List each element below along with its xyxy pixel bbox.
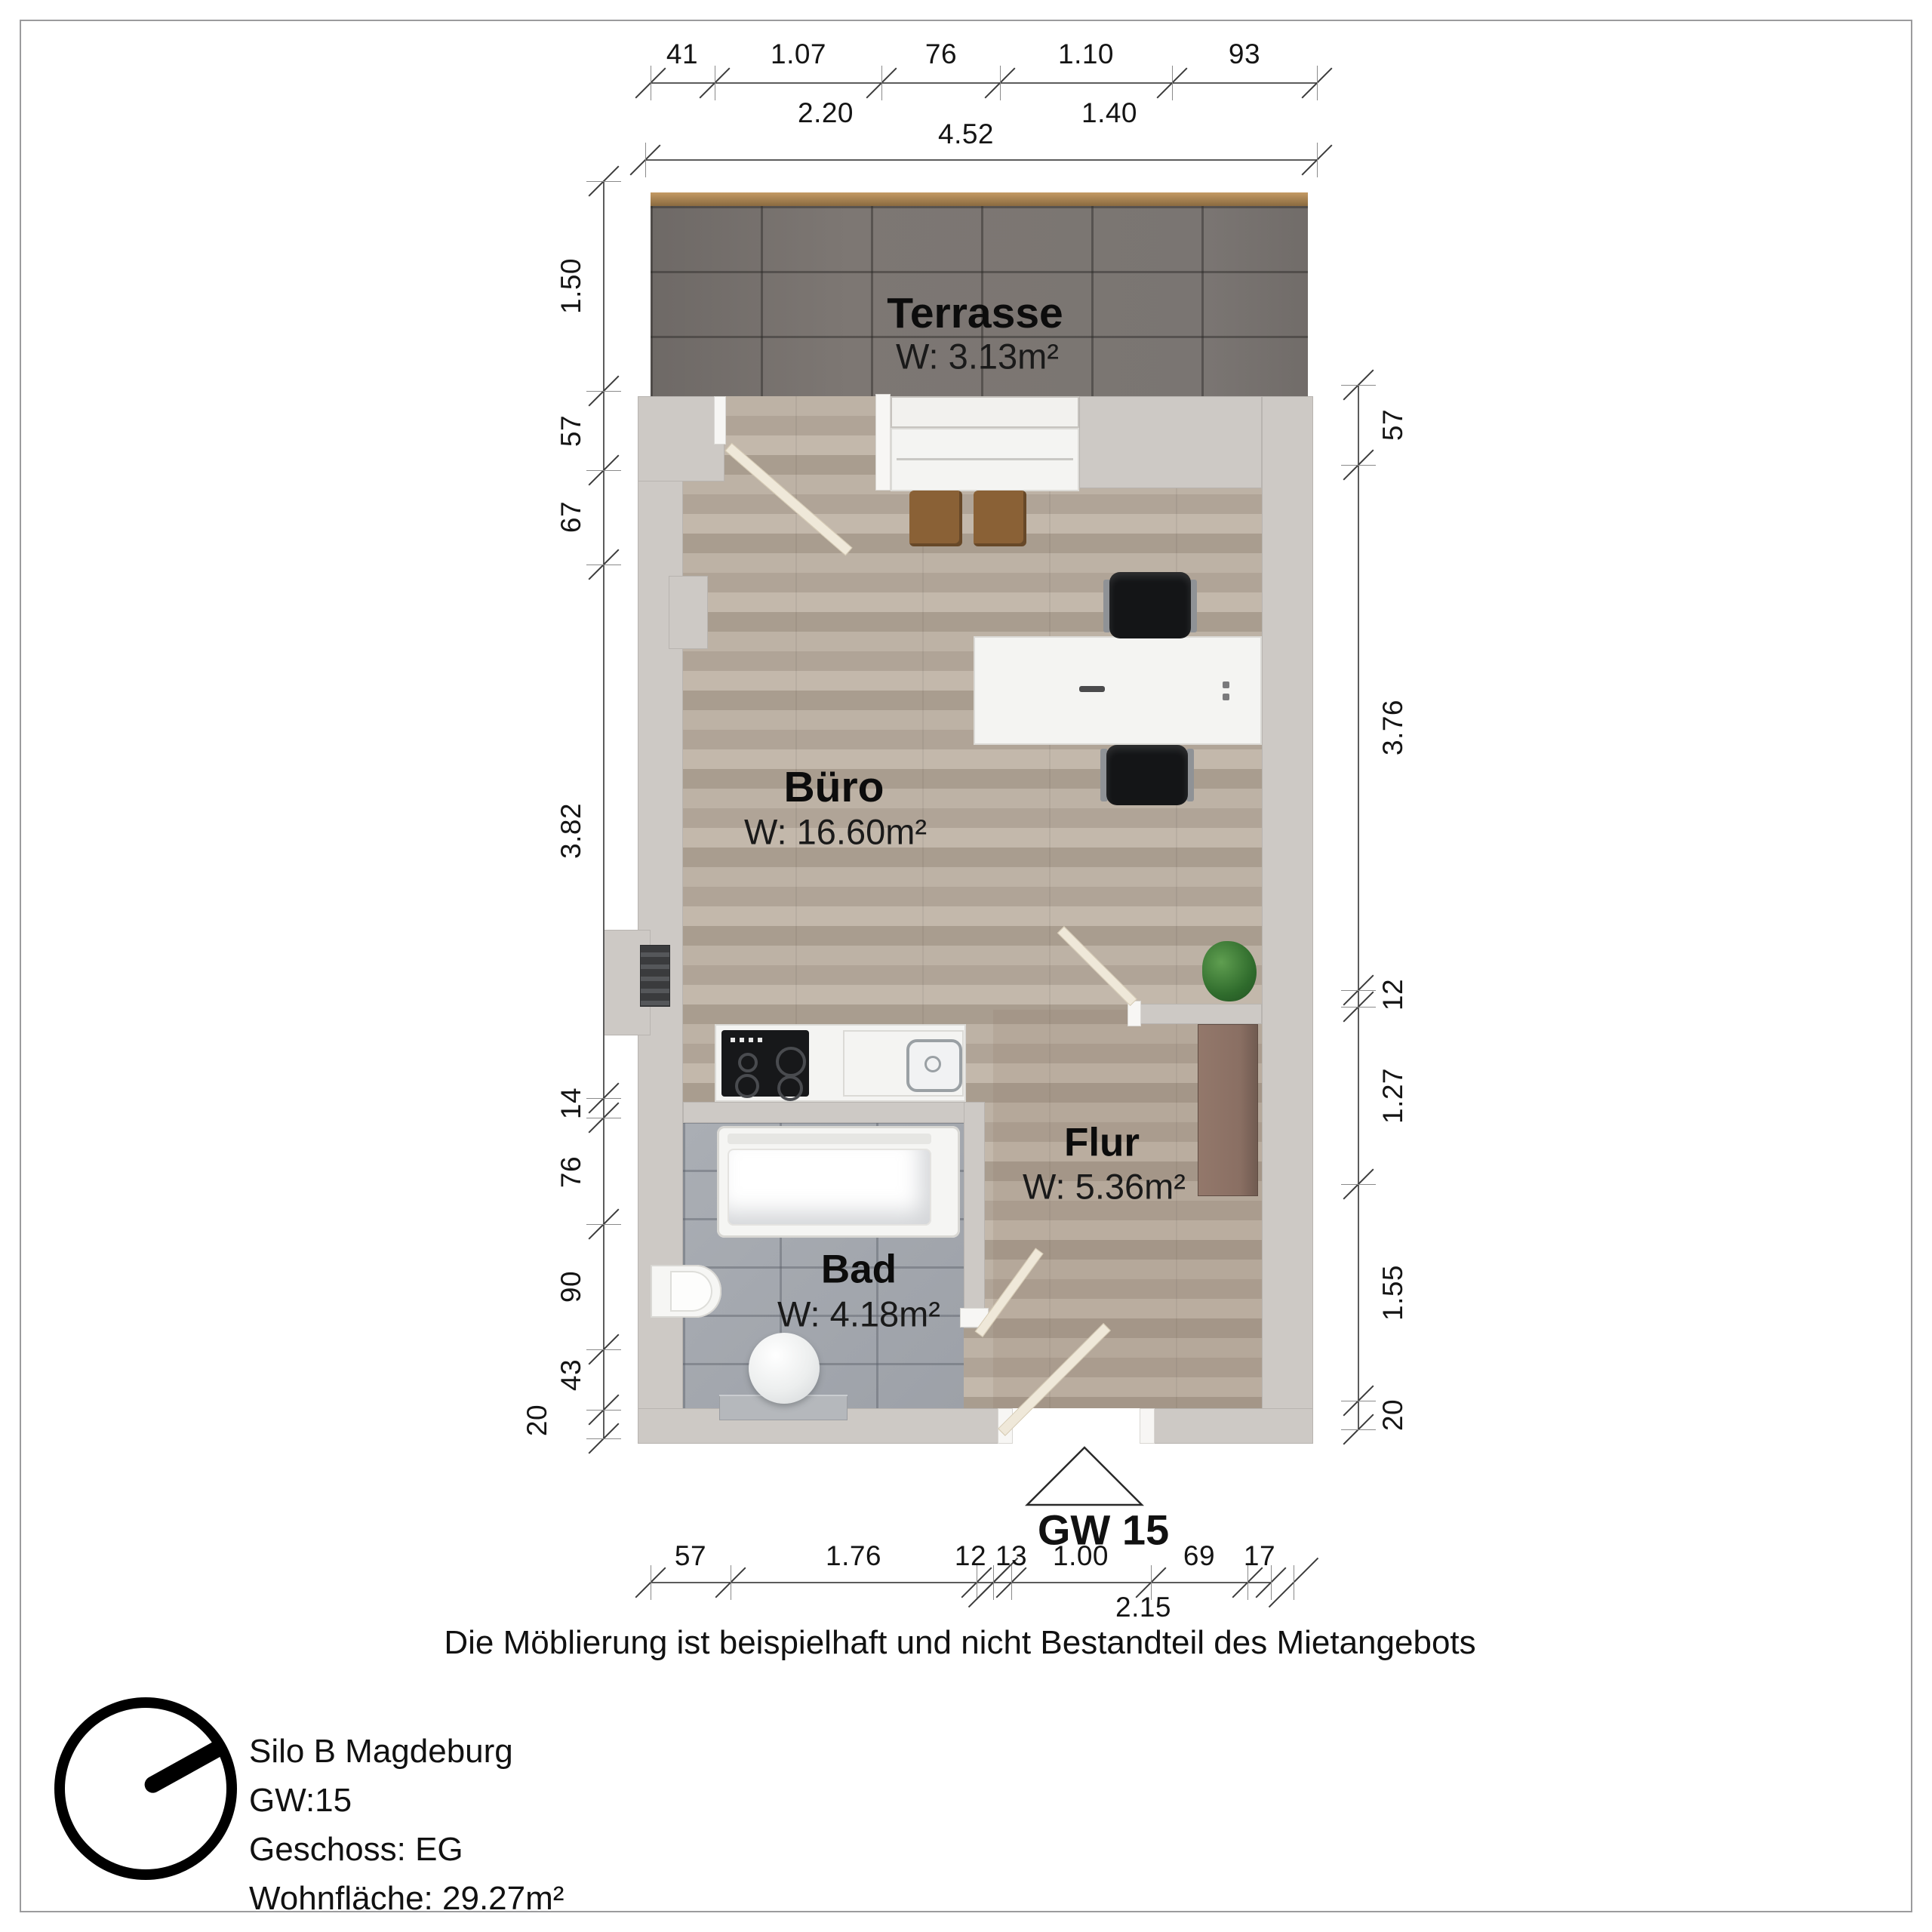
- desk-grommet-2: [1223, 694, 1229, 700]
- furnishing-caption: Die Möblierung ist beispielhaft und nich…: [444, 1624, 1475, 1662]
- room-area-terrasse: W: 3.13m²: [896, 336, 1059, 377]
- dim-top-93: 93: [1229, 38, 1260, 70]
- dim-left-67: 67: [555, 501, 587, 533]
- dim-bottom-12: 12: [955, 1540, 986, 1572]
- office-chair-top: [1109, 572, 1191, 638]
- dim-top-110: 1.10: [1058, 38, 1114, 70]
- bathtub: [717, 1126, 960, 1238]
- sink-unit: [843, 1030, 964, 1097]
- dim-left-14: 14: [555, 1088, 587, 1119]
- wall-buero-flur: [1134, 1004, 1262, 1024]
- dim-left-20: 20: [521, 1404, 553, 1436]
- burner: [735, 1074, 759, 1098]
- desk: [974, 636, 1262, 745]
- stool-2: [974, 491, 1026, 546]
- dim-bottom-total: 2.15: [1115, 1592, 1171, 1623]
- wall-bottom-right: [1151, 1408, 1313, 1444]
- wall-bad-flur: [964, 1102, 985, 1328]
- dim-left-57: 57: [555, 415, 587, 447]
- dim-left-90: 90: [555, 1271, 587, 1303]
- wardrobe: [1198, 1024, 1258, 1196]
- stool-1: [909, 491, 962, 546]
- entrance-jamb-right: [1140, 1408, 1155, 1444]
- room-area-flur: W: 5.36m²: [1023, 1166, 1186, 1207]
- terrace-door-jamb-right: [875, 394, 891, 491]
- project-info-block: Silo B Magdeburg GW:15 Geschoss: EG Wohn…: [249, 1727, 564, 1923]
- desk-grommet: [1223, 681, 1229, 688]
- terrace-edge-board: [651, 192, 1308, 206]
- burner: [738, 1053, 758, 1072]
- dim-right-20: 20: [1377, 1399, 1409, 1431]
- room-label-buero: Büro: [784, 762, 884, 812]
- unit-title: GW 15: [1038, 1506, 1169, 1555]
- desk-drawer-handle: [1079, 686, 1105, 692]
- cooktop: [721, 1030, 809, 1097]
- dim-right-57: 57: [1377, 409, 1409, 441]
- dim-left-43: 43: [555, 1359, 587, 1391]
- wall-right: [1262, 396, 1313, 1444]
- dim-top-140: 1.40: [1081, 97, 1137, 129]
- bathtub-ledge: [728, 1134, 931, 1144]
- plant: [1202, 941, 1257, 1001]
- info-floor: Geschoss: EG: [249, 1825, 564, 1874]
- wall-buero-bad: [683, 1102, 985, 1123]
- dim-right-12: 12: [1377, 979, 1409, 1011]
- sideboard-drawer-line: [897, 458, 1073, 460]
- office-chair-bottom: [1106, 745, 1188, 805]
- room-label-terrasse: Terrasse: [887, 288, 1063, 338]
- dim-top-41: 41: [666, 38, 698, 70]
- sink-drain: [924, 1056, 941, 1072]
- dim-bottom-17: 17: [1244, 1540, 1275, 1572]
- dim-bottom-69: 69: [1183, 1540, 1215, 1572]
- burner: [777, 1075, 803, 1101]
- room-area-bad: W: 4.18m²: [777, 1294, 940, 1335]
- info-area: Wohnfläche: 29.27m²: [249, 1874, 564, 1923]
- toilet: [651, 1265, 721, 1318]
- bathtub-inner: [728, 1149, 931, 1226]
- dim-bottom-57: 57: [675, 1540, 706, 1572]
- dim-left-382: 3.82: [555, 803, 587, 859]
- dim-left-150: 1.50: [555, 258, 587, 314]
- wall-left-step: [669, 576, 708, 649]
- dim-left-76: 76: [555, 1156, 587, 1188]
- entrance-triangle-icon: [1025, 1445, 1144, 1507]
- dim-bottom-176: 1.76: [826, 1540, 881, 1572]
- cooktop-dots: [731, 1038, 764, 1042]
- washbasin: [749, 1333, 820, 1404]
- terrace-window: [891, 396, 1079, 428]
- dim-top-220: 2.20: [798, 97, 854, 129]
- toilet-seat: [670, 1271, 712, 1312]
- dim-top-107: 1.07: [771, 38, 826, 70]
- floorplan-page: 41 1.07 76 1.10 93 2.20 1.40 4.52 1.50 5…: [0, 0, 1932, 1932]
- dim-bottom-13: 13: [995, 1540, 1027, 1572]
- room-label-bad: Bad: [821, 1247, 897, 1293]
- dim-top-76: 76: [925, 38, 957, 70]
- radiator: [640, 945, 670, 1007]
- burner: [776, 1047, 806, 1077]
- room-label-flur: Flur: [1064, 1120, 1140, 1166]
- dim-right-155: 1.55: [1377, 1265, 1409, 1321]
- info-unit: GW:15: [249, 1776, 564, 1825]
- room-area-buero: W: 16.60m²: [744, 811, 927, 853]
- dim-right-127: 1.27: [1377, 1068, 1409, 1124]
- terrace-door-jamb-left: [714, 396, 726, 445]
- dim-top-total: 4.52: [938, 118, 994, 150]
- dim-right-376: 3.76: [1377, 700, 1409, 755]
- info-building: Silo B Magdeburg: [249, 1727, 564, 1776]
- wall-top-right-block: [1079, 396, 1262, 488]
- wall-left-upper-block: [638, 396, 724, 481]
- sideboard: [891, 428, 1079, 491]
